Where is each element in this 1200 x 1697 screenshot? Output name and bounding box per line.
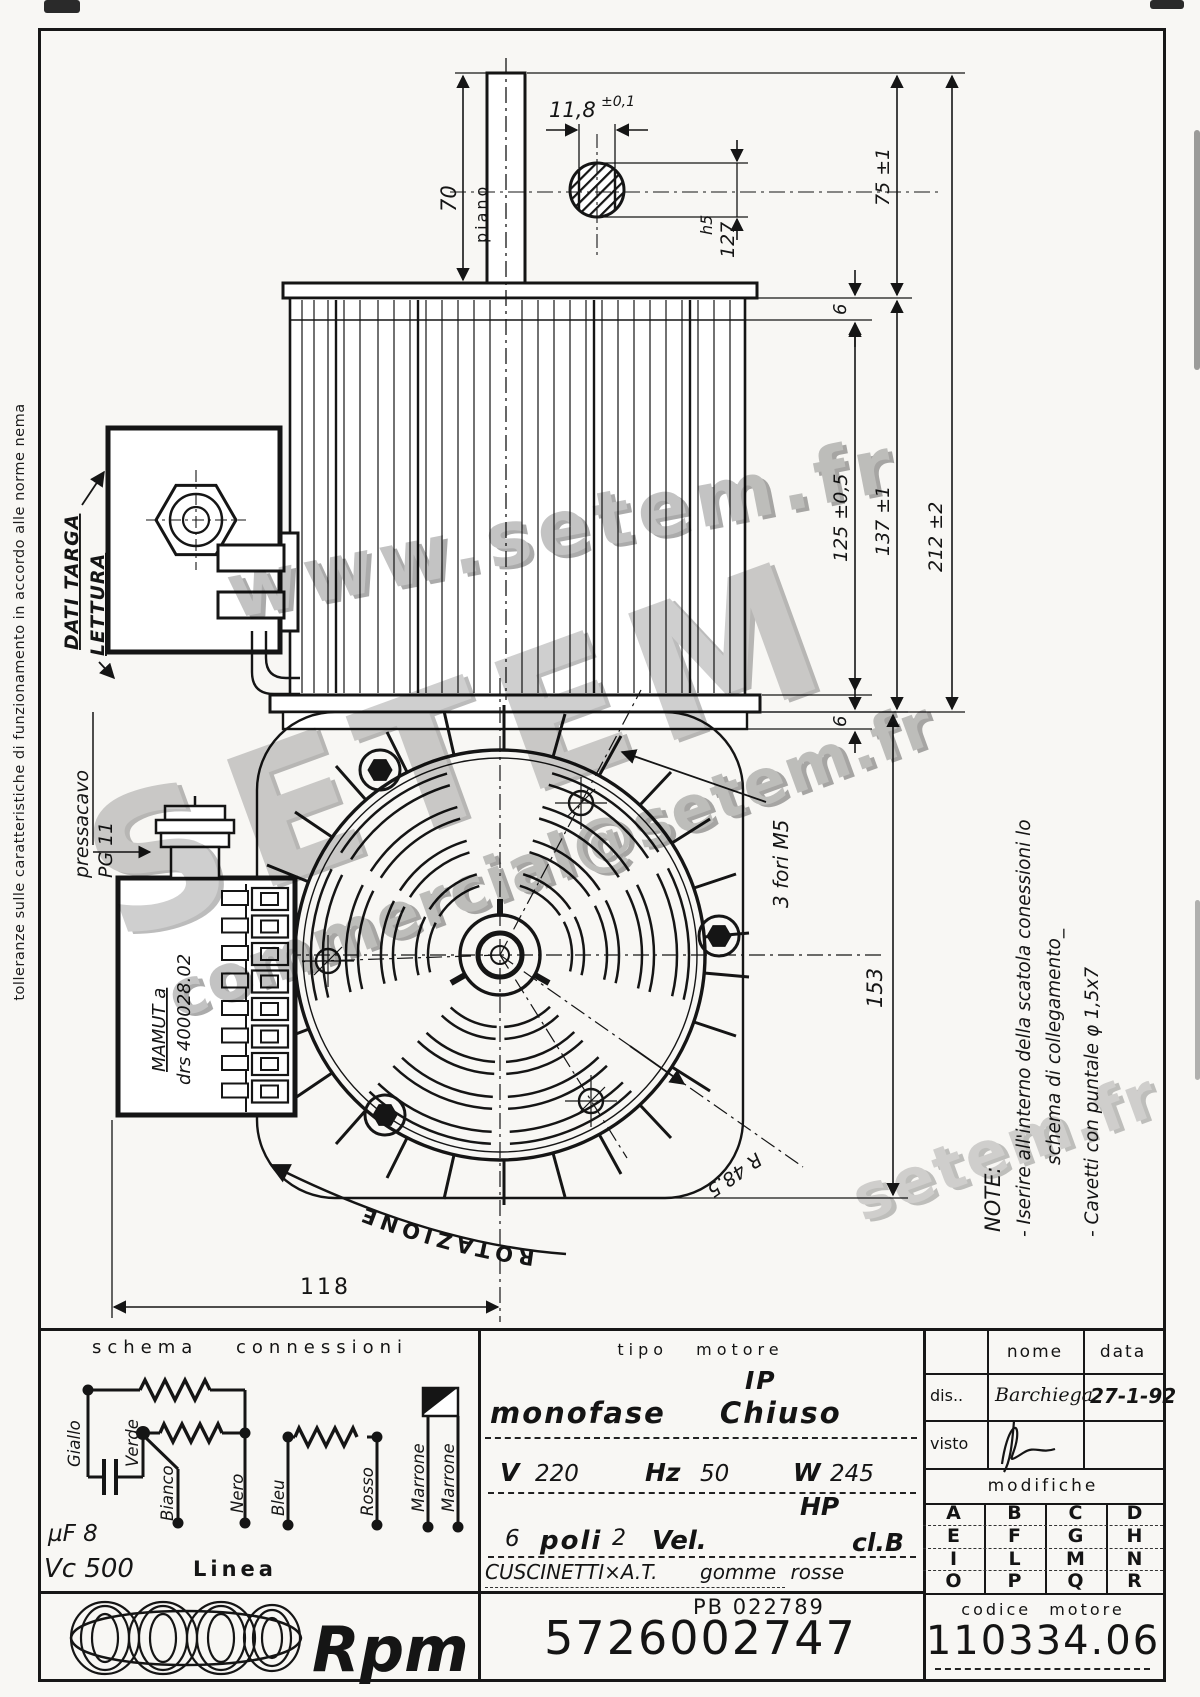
titleblock-mid-line-left <box>38 1591 923 1594</box>
rule-dashed <box>485 1437 917 1439</box>
codice-motore-label: codice motore <box>923 1600 1163 1619</box>
titleblock-divider-1 <box>478 1328 481 1679</box>
scan-artifact <box>1150 0 1184 9</box>
tipo-motore-title: tipo motore <box>483 1340 918 1359</box>
mod-letter: I <box>923 1548 984 1570</box>
volt-label: V <box>500 1458 519 1487</box>
mod-letter: A <box>923 1502 984 1524</box>
mod-letter: M <box>1045 1548 1106 1570</box>
scan-artifact <box>1195 900 1200 1080</box>
row-line <box>923 1593 1163 1595</box>
mod-letter: N <box>1106 1548 1163 1570</box>
dis-name: Barchiega <box>995 1384 1093 1406</box>
speeds-label: Vel. <box>652 1526 707 1556</box>
rule-dashed <box>488 1492 916 1494</box>
row-line <box>923 1468 1163 1470</box>
rule-dashed <box>488 1556 916 1558</box>
mod-letter: C <box>1045 1502 1106 1524</box>
mod-letter: D <box>1106 1502 1163 1524</box>
insulation-class: cl.B <box>852 1528 904 1557</box>
drawing-border-frame <box>38 28 1166 1682</box>
watt-label: W <box>793 1458 821 1487</box>
volt-value: 220 <box>535 1461 579 1487</box>
scan-artifact <box>1194 130 1200 370</box>
rule-dashed <box>485 1587 785 1588</box>
mod-letter: B <box>984 1502 1045 1524</box>
mod-letter: L <box>984 1548 1045 1570</box>
motor-type: monofase Chiuso <box>490 1396 842 1430</box>
scan-artifact <box>44 0 80 13</box>
mod-letter: G <box>1045 1525 1106 1547</box>
poles-label: poli <box>540 1526 602 1556</box>
mod-letter: P <box>984 1570 1045 1592</box>
mod-letter: F <box>984 1525 1045 1547</box>
mod-letter: R <box>1106 1570 1163 1592</box>
ip-label: IP <box>745 1366 777 1395</box>
schema-title: schema connessioni <box>60 1337 440 1358</box>
dis-label: dis.. <box>930 1386 963 1405</box>
scanned-technical-drawing: www.setem.fr SETEM commercial@setem.fr s… <box>0 0 1200 1697</box>
titleblock-top-line <box>38 1328 1163 1331</box>
visto-label: visto <box>930 1434 968 1453</box>
hz-label: Hz <box>645 1458 680 1487</box>
codice-motore-value: 110334.06 <box>923 1618 1163 1664</box>
hz-value: 50 <box>700 1461 729 1487</box>
speeds-value: 2 <box>612 1526 626 1551</box>
rule-dashed <box>935 1668 1150 1670</box>
dis-date: 27-1-92 <box>1090 1384 1176 1408</box>
mod-letter: Q <box>1045 1570 1106 1592</box>
hp-label: HP <box>800 1492 839 1521</box>
watt-value: 245 <box>830 1461 874 1487</box>
margin-tolerance-note: tolleranze sulle caratteristiche di funz… <box>12 124 28 1280</box>
part-number: 5726002747 <box>483 1611 918 1665</box>
bearings-note2: gomme rosse <box>700 1560 844 1584</box>
mod-letter: E <box>923 1525 984 1547</box>
modifiche-header: modifiche <box>923 1476 1163 1496</box>
bearings-note: CUSCINETTI×A.T. <box>485 1560 657 1584</box>
data-header: data <box>1083 1342 1163 1362</box>
poles-value: 6 <box>505 1526 520 1552</box>
row-line <box>923 1420 1163 1422</box>
row-line <box>923 1373 1163 1375</box>
mod-letter: H <box>1106 1525 1163 1547</box>
nome-header: nome <box>987 1342 1083 1362</box>
mod-letter: O <box>923 1570 984 1592</box>
